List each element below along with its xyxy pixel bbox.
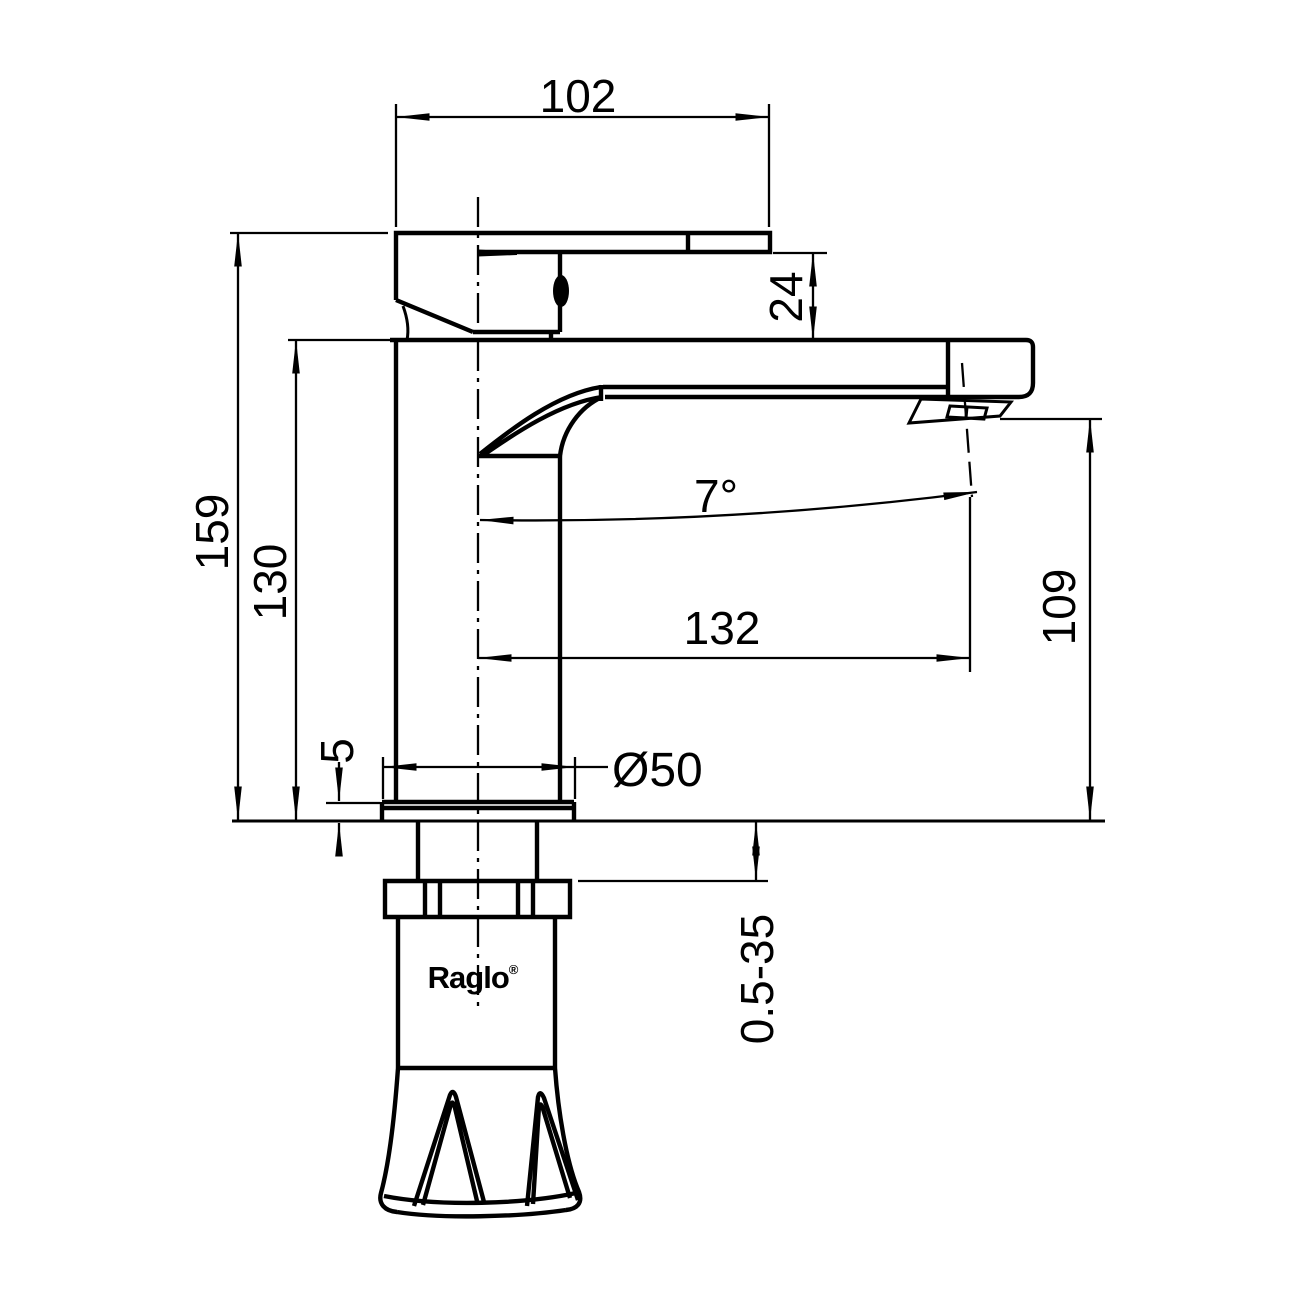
dim-spout-angle: 7° <box>480 470 977 522</box>
dim-plate-thickness: 5 <box>311 738 380 854</box>
faucet-dimension-drawing: Raglo® 102 24 159 130 <box>0 0 1300 1300</box>
trademark-icon: ® <box>509 962 519 977</box>
handle-lever <box>396 233 770 332</box>
dim-102-label: 102 <box>540 70 617 122</box>
dim-overall-height: 159 <box>186 233 388 820</box>
aerator <box>909 399 1011 423</box>
dim-dia50-label: Ø50 <box>612 744 703 797</box>
dim-handle-clearance: 24 <box>760 253 827 340</box>
technical-drawing-page: Raglo® 102 24 159 130 <box>0 0 1300 1300</box>
faucet-outline: Raglo® <box>232 197 1105 1216</box>
dim-109-label: 109 <box>1033 569 1085 646</box>
dim-handle-width: 102 <box>396 70 769 227</box>
dim-5-label: 5 <box>311 738 363 764</box>
dimension-annotations: 102 24 159 130 7° 13 <box>186 70 1102 1044</box>
dim-132-label: 132 <box>684 602 761 654</box>
brand-logo-text: Raglo <box>428 960 509 995</box>
dim-base-diameter: Ø50 <box>383 744 703 799</box>
brand-logo: Raglo® <box>428 960 519 995</box>
dim-mounting-range: 0.5-35 <box>578 822 783 1044</box>
dim-24-label: 24 <box>760 271 812 322</box>
spout-body <box>390 340 1033 456</box>
handle-tip-curve <box>403 306 408 340</box>
dim-outlet-height: 109 <box>1000 419 1102 820</box>
dim-130-label: 130 <box>244 544 296 621</box>
dim-132-dashed-extension <box>962 363 972 497</box>
dim-7deg-label: 7° <box>694 470 738 522</box>
cartridge-housing <box>473 252 560 340</box>
dim-mount-label: 0.5-35 <box>731 914 783 1044</box>
handle-set-screw <box>553 275 569 307</box>
dim-102-extension-lines <box>396 104 769 227</box>
dim-159-label: 159 <box>186 494 238 571</box>
hose-cones <box>414 1092 578 1206</box>
